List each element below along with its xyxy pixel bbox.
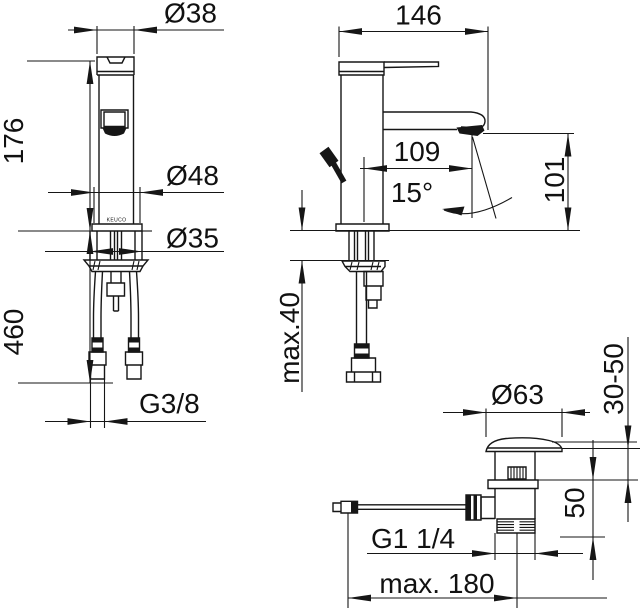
drain-plug-cap bbox=[486, 438, 562, 452]
technical-drawing-page: KEUCO Ø38 bbox=[0, 0, 640, 613]
front-supply-hoses bbox=[89, 272, 143, 380]
side-view: 146 109 15° 101 max.40 bbox=[274, 0, 580, 392]
dim-label-d63: Ø63 bbox=[491, 379, 544, 410]
dim-label-50: 50 bbox=[559, 487, 590, 518]
dim-label-176: 176 bbox=[0, 118, 29, 165]
drain-body bbox=[481, 452, 538, 520]
dim-label-109: 109 bbox=[394, 136, 441, 167]
side-faucet-lever bbox=[339, 62, 439, 75]
dim-label-146: 146 bbox=[395, 0, 442, 31]
dim-front-base-diameter: Ø48 bbox=[48, 160, 224, 223]
brand-logo: KEUCO bbox=[107, 218, 127, 224]
dim-label-d48: Ø48 bbox=[166, 160, 219, 191]
dim-front-hose-length-460: 460 bbox=[0, 231, 113, 383]
front-aerator bbox=[103, 128, 127, 136]
dim-side-depth-146: 146 bbox=[339, 0, 488, 130]
side-deck-lines bbox=[290, 231, 580, 261]
side-aerator bbox=[457, 125, 485, 136]
front-view: KEUCO Ø38 bbox=[0, 0, 224, 428]
dim-label-3050: 30-50 bbox=[598, 343, 629, 415]
front-faucet-handle bbox=[97, 57, 134, 75]
dim-label-15deg: 15° bbox=[391, 177, 433, 208]
drain-view: Ø63 30-50 50 G1 1/4 max. 180 bbox=[333, 337, 640, 608]
side-faucet-body bbox=[336, 75, 389, 231]
dim-side-deck-thickness: max.40 bbox=[274, 190, 305, 392]
drain-pull-rod bbox=[333, 495, 481, 520]
drain-thread bbox=[497, 519, 535, 608]
dim-front-supply-thread: G3/8 bbox=[45, 379, 206, 428]
dim-label-d38: Ø38 bbox=[164, 0, 217, 29]
front-faucet-body: KEUCO bbox=[97, 75, 134, 224]
dim-label-460: 460 bbox=[0, 309, 29, 356]
dim-front-spout-diameter: Ø38 bbox=[68, 0, 224, 54]
side-spout bbox=[383, 112, 485, 136]
dim-drain-adjust-range: 30-50 bbox=[598, 337, 631, 522]
dim-label-g114: G1 1/4 bbox=[371, 523, 455, 554]
dim-side-outlet-height-101: 101 bbox=[483, 134, 574, 231]
dim-label-max180: max. 180 bbox=[379, 568, 494, 599]
dim-label-d35: Ø35 bbox=[166, 223, 219, 254]
dim-drain-waste-thread: G1 1/4 bbox=[367, 523, 583, 560]
side-mounting bbox=[342, 231, 385, 382]
dim-drain-body-height-50: 50 bbox=[559, 440, 596, 580]
dim-label-g38: G3/8 bbox=[139, 388, 200, 419]
technical-drawing-canvas: KEUCO Ø38 bbox=[0, 0, 640, 613]
dim-label-101: 101 bbox=[539, 157, 570, 204]
dim-drain-cap-diameter: Ø63 bbox=[443, 379, 590, 437]
dim-label-max40: max.40 bbox=[274, 292, 305, 384]
dim-front-height-176: 176 bbox=[0, 61, 95, 231]
